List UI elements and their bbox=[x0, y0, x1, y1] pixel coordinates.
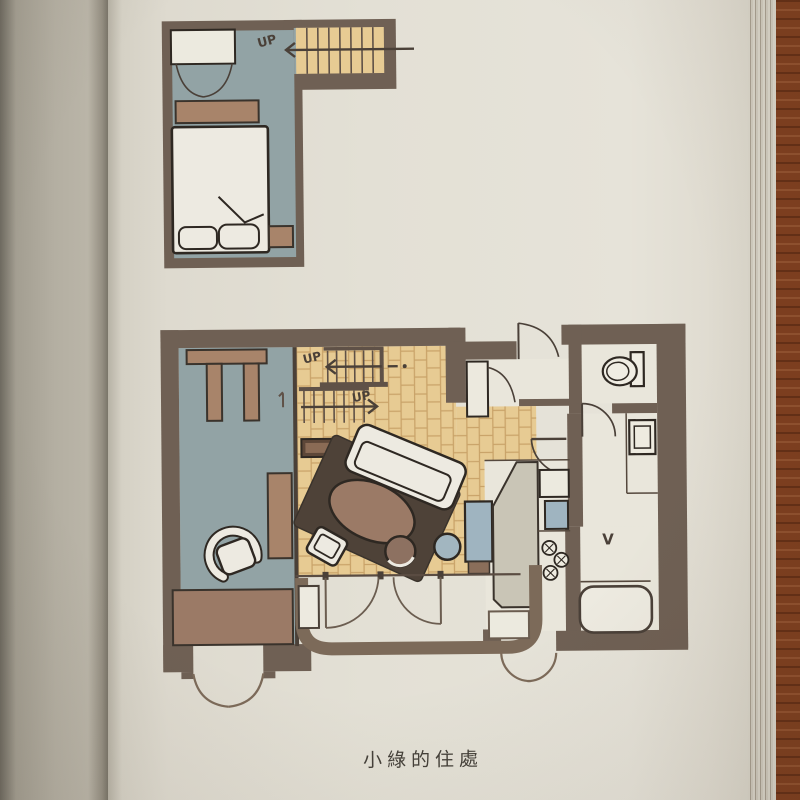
kitchen-appliance bbox=[540, 470, 569, 497]
tv-board bbox=[465, 501, 493, 573]
loft-nightstand bbox=[269, 226, 293, 247]
french-doors bbox=[326, 577, 441, 628]
side-ball-seat bbox=[434, 534, 460, 560]
bathtub bbox=[580, 586, 652, 633]
bath-step-mat bbox=[489, 611, 529, 638]
kitchen-sink bbox=[545, 501, 568, 529]
veranda-shelf bbox=[299, 586, 319, 628]
vanity-mark: V bbox=[602, 530, 614, 548]
loft-bed bbox=[172, 126, 269, 253]
loft-bedroom-floor-plan: UP bbox=[149, 9, 432, 282]
pillow bbox=[219, 224, 259, 248]
stool bbox=[385, 536, 415, 566]
bottom-desk bbox=[173, 589, 293, 645]
side-desk bbox=[268, 473, 293, 558]
loft-dresser bbox=[176, 100, 259, 123]
bathroom-partition bbox=[581, 581, 651, 582]
west-balcony-doors bbox=[193, 673, 263, 707]
shoe-cabinet bbox=[467, 361, 488, 416]
book-page-edges bbox=[748, 0, 774, 800]
caption: 小綠的住處 bbox=[348, 744, 498, 773]
front-door bbox=[518, 323, 558, 359]
south-east-doors bbox=[501, 653, 556, 681]
pillow bbox=[179, 227, 217, 249]
washing-machine bbox=[629, 420, 655, 454]
book-left-page bbox=[0, 0, 110, 800]
main-floor-plan: UP UP bbox=[153, 316, 696, 713]
